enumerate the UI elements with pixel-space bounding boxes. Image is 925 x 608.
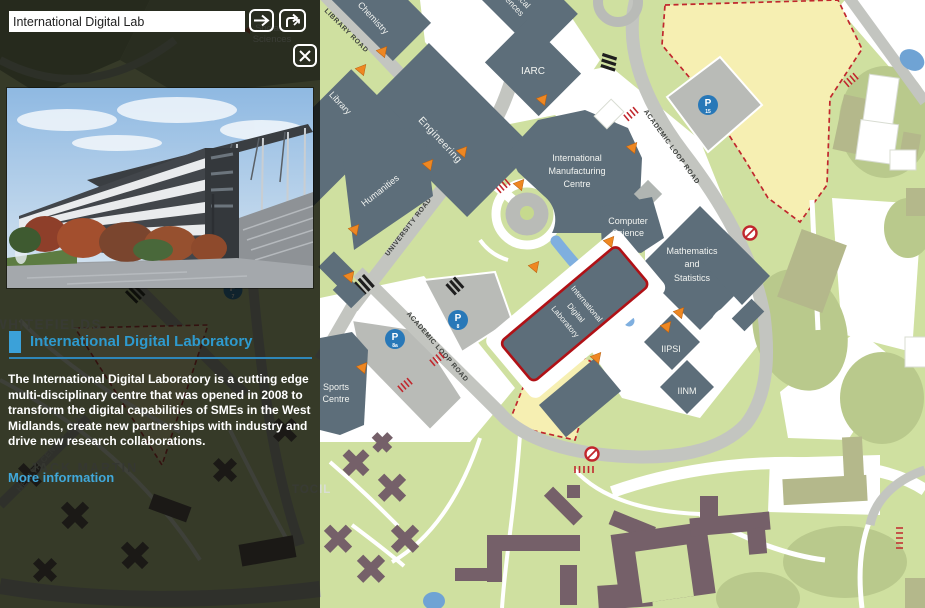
building-sports-centre[interactable]: Sports Centre: [320, 332, 368, 435]
route-fork-arrow-icon: [284, 13, 301, 28]
svg-text:IIPSI: IIPSI: [661, 344, 681, 354]
svg-text:Sports: Sports: [323, 382, 350, 392]
svg-text:P: P: [392, 332, 399, 343]
svg-text:Centre: Centre: [563, 179, 590, 189]
close-panel-button[interactable]: [293, 44, 317, 67]
info-sidebar: International Digital Laboratory The Int…: [0, 0, 320, 608]
more-information-link[interactable]: More information: [8, 470, 114, 485]
svg-text:15: 15: [705, 109, 711, 115]
parking-p15[interactable]: P 15: [698, 95, 718, 115]
svg-text:Mathematics: Mathematics: [666, 246, 718, 256]
svg-text:IINM: IINM: [678, 386, 697, 396]
title-accent-square: [9, 331, 21, 353]
svg-text:P: P: [455, 313, 462, 324]
search-input[interactable]: [9, 11, 245, 32]
svg-text:Centre: Centre: [322, 394, 349, 404]
svg-text:Statistics: Statistics: [674, 273, 711, 283]
svg-text:International: International: [552, 153, 602, 163]
svg-text:Manufacturing: Manufacturing: [548, 166, 605, 176]
directions-button[interactable]: [279, 9, 306, 32]
svg-text:P: P: [705, 98, 712, 109]
svg-text:IARC: IARC: [521, 66, 545, 77]
svg-text:8: 8: [457, 324, 460, 330]
parking-p8[interactable]: P 8: [448, 310, 468, 330]
parking-p8a[interactable]: P 8a: [385, 329, 405, 349]
title-underline: [9, 357, 312, 359]
building-photo: [7, 88, 313, 288]
svg-text:Computer: Computer: [608, 216, 648, 226]
campus-map-app: P 7 WHITEFIELDS JACK MARTIN TOCIL HEALTH…: [0, 0, 925, 608]
search-go-button[interactable]: [249, 9, 274, 32]
close-icon: [299, 50, 311, 62]
panel-description: The International Digital Laboratory is …: [8, 372, 314, 450]
panel-title: International Digital Laboratory: [30, 333, 313, 350]
svg-text:and: and: [684, 259, 699, 269]
svg-text:8a: 8a: [392, 343, 398, 349]
right-arrow-icon: [253, 14, 270, 27]
fountain: [506, 193, 549, 236]
